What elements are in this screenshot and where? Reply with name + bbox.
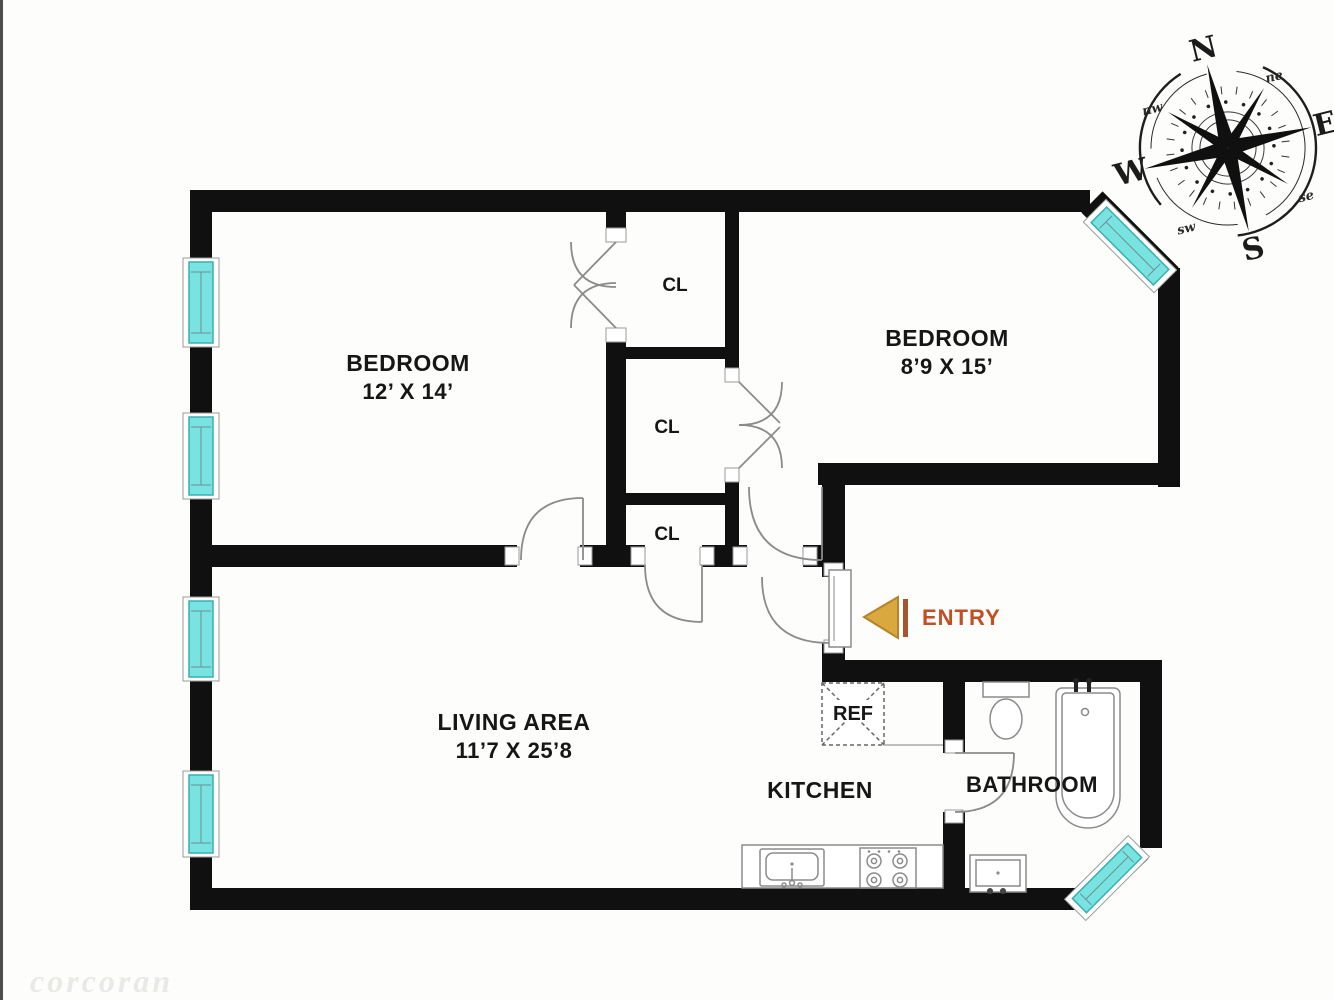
window <box>183 258 219 347</box>
label-bedroom1-dims: 12’ X 14’ <box>362 379 453 404</box>
wall-top <box>190 190 1090 212</box>
door-closet-top <box>571 242 616 328</box>
toilet <box>983 682 1029 739</box>
label-bedroom2-name: BEDROOM <box>885 325 1009 351</box>
walls <box>190 190 1180 910</box>
compass-e: E <box>1310 105 1334 144</box>
compass-nw: nw <box>1141 100 1165 120</box>
entry-label: ENTRY <box>922 605 1001 630</box>
entry-arrow-icon <box>864 597 898 638</box>
jamb <box>631 547 645 565</box>
label-refrigerator: REF <box>833 703 873 725</box>
kitchen-counter <box>742 845 943 888</box>
wall-closet-left-main <box>606 330 626 567</box>
label-closet-top: CL <box>662 275 688 296</box>
compass-w: W <box>1110 151 1153 194</box>
door-closet-bottom <box>645 565 702 622</box>
wall-closet-divider-2 <box>606 493 739 505</box>
floor-plan-page: BEDROOM 12’ X 14’ BEDROOM 8’9 X 15’ LIVI… <box>0 0 1334 1000</box>
wall-kitchen-bath-top <box>822 660 1162 682</box>
entry-marker: ENTRY <box>864 597 1001 638</box>
jamb <box>578 547 592 565</box>
floor-plan-drawing: BEDROOM 12’ X 14’ BEDROOM 8’9 X 15’ LIVI… <box>0 0 1334 1000</box>
window-diagonal-bottom-right <box>1065 836 1150 921</box>
window <box>183 413 219 499</box>
jamb <box>725 368 739 382</box>
watermark: corcoran <box>30 963 173 999</box>
wall-right-bedroom2 <box>1158 268 1180 487</box>
door-bedroom1 <box>521 498 583 560</box>
jamb <box>606 228 626 242</box>
jamb <box>725 468 739 482</box>
jamb <box>945 740 963 753</box>
wall-bedroom1-bottom-left <box>212 545 517 567</box>
door-entry <box>762 570 851 647</box>
jamb <box>606 328 626 342</box>
door-closet-middle <box>739 382 782 468</box>
wall-kitchen-bath-divider-upper <box>943 660 965 753</box>
entry-bar <box>903 599 908 637</box>
window <box>183 597 219 681</box>
label-living-name: LIVING AREA <box>438 709 591 735</box>
label-kitchen: KITCHEN <box>767 777 873 803</box>
compass-ne: ne <box>1264 68 1285 87</box>
wall-kitchen-bath-divider-lower <box>943 812 965 910</box>
compass-star <box>1124 44 1333 253</box>
wall-bathroom-right <box>1140 660 1162 848</box>
wall-closet-divider-1 <box>626 347 725 359</box>
jamb <box>803 547 817 565</box>
screen-left-edge <box>0 0 3 1000</box>
compass-sw: sw <box>1176 219 1198 238</box>
label-living-dims: 11’7 X 25’8 <box>456 738 573 763</box>
wall-closet-right-upper <box>725 212 739 382</box>
bathtub <box>1056 678 1120 828</box>
label-bathroom: BATHROOM <box>966 772 1098 797</box>
label-bedroom2-dims: 8’9 X 15’ <box>901 354 994 379</box>
compass-se: se <box>1297 188 1316 206</box>
jamb <box>700 547 714 565</box>
label-closet-bottom: CL <box>654 524 680 545</box>
window <box>183 771 219 857</box>
compass-n: N <box>1186 29 1221 70</box>
compass-s: S <box>1239 230 1268 269</box>
jamb <box>505 547 519 565</box>
label-bedroom1-name: BEDROOM <box>346 350 470 376</box>
jamb <box>733 547 747 565</box>
window-diagonal-top-right <box>1083 199 1176 292</box>
wall-bedroom2-bottom <box>818 463 1180 485</box>
label-closet-middle: CL <box>654 417 680 438</box>
wall-entry-upper <box>822 463 845 577</box>
bathroom-sink <box>970 855 1026 894</box>
